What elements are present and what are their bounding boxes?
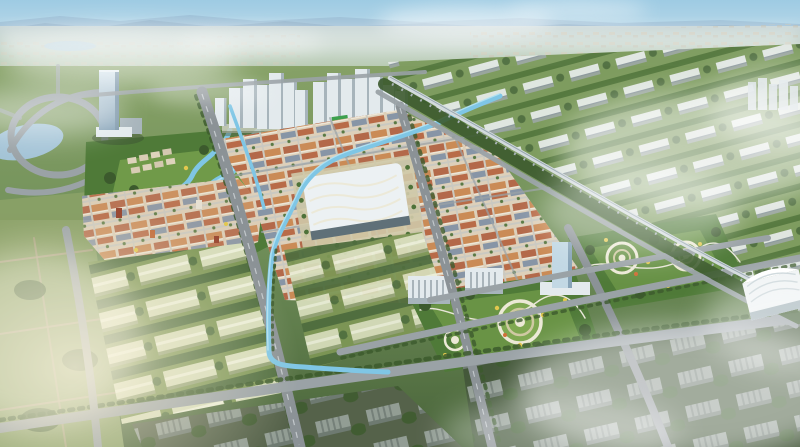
cloud xyxy=(180,28,324,56)
mist-right xyxy=(540,168,740,256)
cloud-wisp xyxy=(150,78,270,106)
city-master-plan-rendering xyxy=(0,0,800,447)
park-orange-tree xyxy=(634,272,638,276)
screenshot-root xyxy=(0,0,800,447)
office-tower xyxy=(552,242,568,288)
office-tower-side xyxy=(568,242,572,288)
park-orange-tree xyxy=(503,333,507,337)
